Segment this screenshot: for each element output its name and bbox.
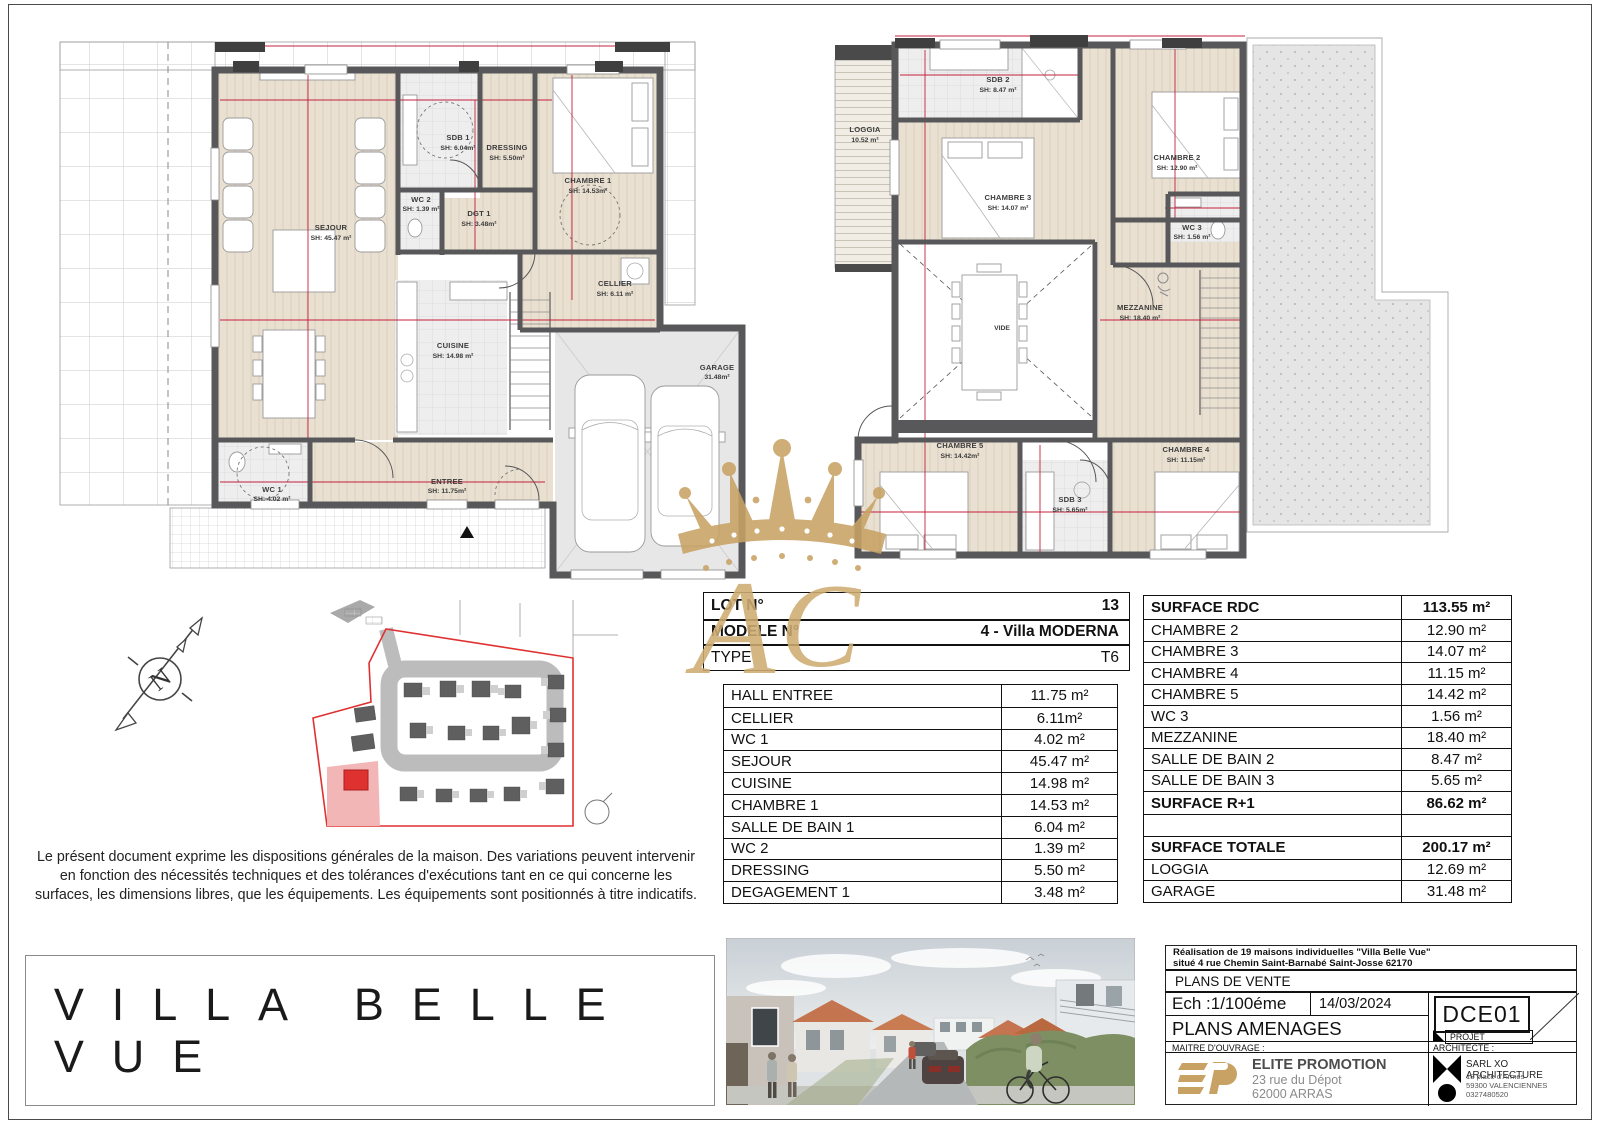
row-value: 11.75 m² xyxy=(1001,685,1117,707)
room-area: SH: 4.02 m² xyxy=(253,496,291,503)
project-title-box: VILLA BELLE VUE xyxy=(25,955,715,1106)
row-value: 11.15 m² xyxy=(1401,663,1511,684)
page-title: VILLA BELLE VUE xyxy=(26,979,714,1083)
table-row: CHAMBRE 314.07 m² xyxy=(1144,641,1511,663)
row-value: 1.39 m² xyxy=(1001,839,1117,860)
row-label: GARAGE xyxy=(1144,883,1401,900)
room-label: CHAMBRE 2 xyxy=(1154,153,1201,162)
table-row: MEZZANINE18.40 m² xyxy=(1144,727,1511,749)
elite-promotion-logo-icon xyxy=(1178,1059,1240,1101)
row-label: SURFACE R+1 xyxy=(1144,795,1401,812)
bed-icon xyxy=(553,78,653,173)
row-label: WC 1 xyxy=(724,731,1001,748)
room-label: SDB 3 xyxy=(1058,495,1081,504)
car-icon xyxy=(645,386,725,546)
row-value: 6.11m² xyxy=(1001,708,1117,729)
room-label: MEZZANINE xyxy=(1117,303,1163,312)
table-row: CHAMBRE 114.53 m² xyxy=(724,794,1117,816)
row-label: SALLE DE BAIN 3 xyxy=(1144,772,1401,789)
room-label: CHAMBRE 3 xyxy=(985,193,1032,202)
row-label: SURFACE RDC xyxy=(1144,599,1401,616)
room-label: DRESSING xyxy=(486,143,527,152)
table-row: TYPE T6 xyxy=(704,644,1129,670)
row-label: SALLE DE BAIN 1 xyxy=(724,819,1001,836)
room-label: ENTREE xyxy=(431,477,463,486)
date-value: 14/03/2024 xyxy=(1311,993,1428,1016)
row-label: CELLIER xyxy=(724,710,1001,727)
street-photo xyxy=(726,938,1135,1105)
row-value: 12.90 m² xyxy=(1401,620,1511,641)
row-label: CHAMBRE 1 xyxy=(724,797,1001,814)
room-area: SH: 6.04m² xyxy=(440,145,476,152)
title-block: Réalisation de 19 maisons individuelles … xyxy=(1165,945,1577,1105)
room-area: SH: 11.15m² xyxy=(1167,457,1206,464)
table-row: LOT N° 13 xyxy=(704,593,1129,619)
owner-label: MAITRE D'OUVRAGE : xyxy=(1172,1043,1265,1053)
table-row: SURFACE TOTALE200.17 m² xyxy=(1144,836,1511,859)
scale-value: Ech :1/100éme xyxy=(1166,993,1311,1016)
vide-parapet xyxy=(895,420,1097,433)
row-value: 3.48 m² xyxy=(1001,882,1117,903)
room-area: SH: 1.56 m² xyxy=(1173,234,1211,241)
room-area: SH: 1.39 m² xyxy=(402,206,440,213)
table-row: SURFACE RDC113.55 m² xyxy=(1144,596,1511,619)
row-label: SALLE DE BAIN 2 xyxy=(1144,751,1401,768)
room-label: VIDE xyxy=(994,325,1010,332)
table-row-empty xyxy=(1144,814,1511,836)
row-value: T6 xyxy=(859,646,1129,670)
room-area: 10.52 m² xyxy=(851,137,879,144)
row-value: 14.42 m² xyxy=(1401,685,1511,706)
table-row: LOGGIA12.69 m² xyxy=(1144,859,1511,881)
room-label: SDB 1 xyxy=(446,133,470,142)
room-label: CHAMBRE 1 xyxy=(565,176,613,185)
plan-sheet: SEJOUR SH: 45.47 m² SDB 1 SH: 6.04m² DRE… xyxy=(0,0,1600,1131)
table-row: DRESSING5.50 m² xyxy=(724,859,1117,881)
room-area: 31.48m² xyxy=(704,374,730,381)
row-value: 1.56 m² xyxy=(1401,706,1511,727)
room-label: CELLIER xyxy=(598,279,632,288)
row-value: 86.62 m² xyxy=(1401,792,1511,814)
compass-north-label: N xyxy=(144,662,177,697)
rdc-rooms-table: HALL ENTREE11.75 m² CELLIER6.11m² WC 14.… xyxy=(723,684,1118,904)
project-description-line2: situé 4 rue Chemin Saint-Barnabé Saint-J… xyxy=(1173,959,1576,970)
document-type: PLANS DE VENTE xyxy=(1166,969,1576,993)
room-area: SH: 14.53m² xyxy=(569,188,609,195)
table-row: CUISINE14.98 m² xyxy=(724,772,1117,794)
row-label: CUISINE xyxy=(724,775,1001,792)
room-label: CHAMBRE 5 xyxy=(937,441,985,450)
row-label: TYPE xyxy=(704,649,859,667)
row-value: 8.47 m² xyxy=(1401,749,1511,770)
table-row: GARAGE31.48 m² xyxy=(1144,880,1511,902)
row-value: 13 xyxy=(859,593,1129,619)
room-label: LOGGIA xyxy=(849,125,880,134)
architect-phone: 0327480520 xyxy=(1466,1090,1508,1099)
row-value: 14.07 m² xyxy=(1401,642,1511,663)
row-label: MEZZANINE xyxy=(1144,729,1401,746)
table-row: HALL ENTREE11.75 m² xyxy=(724,685,1117,707)
row-label: CHAMBRE 3 xyxy=(1144,643,1401,660)
toilet-icon xyxy=(1211,221,1225,239)
room-area: SH: 45.47 m² xyxy=(311,235,353,242)
table-row: CHAMBRE 212.90 m² xyxy=(1144,619,1511,641)
row-label: HALL ENTREE xyxy=(724,687,1001,704)
room-area: SH: 3.48m² xyxy=(461,221,497,228)
room-area: SH: 11.75m² xyxy=(428,488,467,495)
architect-label: ARCHITECTE : xyxy=(1433,1043,1494,1053)
row-value: 5.50 m² xyxy=(1001,860,1117,881)
room-label: SDB 2 xyxy=(986,75,1009,84)
row-value: 45.47 m² xyxy=(1001,751,1117,772)
row-label: DRESSING xyxy=(724,862,1001,879)
row-label: WC 2 xyxy=(724,840,1001,857)
row-value: 12.69 m² xyxy=(1401,860,1511,881)
room-label: WC 1 xyxy=(262,485,282,494)
room-label: WC 3 xyxy=(1182,223,1202,232)
row-label: LOT N° xyxy=(704,597,859,615)
dining-table-icon xyxy=(253,330,325,418)
architect-address1: 18 place d'Armes xyxy=(1466,1072,1524,1081)
row-value: 14.98 m² xyxy=(1001,773,1117,794)
site-plan xyxy=(300,595,620,830)
surfaces-table: SURFACE RDC113.55 m² CHAMBRE 212.90 m² C… xyxy=(1143,595,1512,903)
table-row: SALLE DE BAIN 35.65 m² xyxy=(1144,770,1511,792)
document-code: DCE01 xyxy=(1434,996,1530,1033)
row-label: DEGAGEMENT 1 xyxy=(724,884,1001,901)
toilet-icon xyxy=(408,219,422,237)
room-area: SH: 14.42m² xyxy=(941,453,981,460)
row-label: SEJOUR xyxy=(724,753,1001,770)
owner-address2: 62000 ARRAS xyxy=(1252,1087,1333,1101)
owner-name: ELITE PROMOTION xyxy=(1252,1057,1387,1073)
table-row: WC 21.39 m² xyxy=(724,838,1117,860)
room-label: GARAGE xyxy=(700,363,735,372)
room-area: SH: 8.47 m² xyxy=(979,87,1017,94)
row-value: 31.48 m² xyxy=(1401,881,1511,902)
room-area: SH: 14.07 m² xyxy=(988,205,1030,212)
room-label: SEJOUR xyxy=(315,223,348,232)
table-row: MODELE N° 4 - Villa MODERNA xyxy=(704,619,1129,645)
row-value: 14.53 m² xyxy=(1001,795,1117,816)
room-label: CHAMBRE 4 xyxy=(1163,445,1211,454)
room-label: CUISINE xyxy=(437,341,469,350)
row-value: 4.02 m² xyxy=(1001,730,1117,751)
diagonal-cell xyxy=(1530,993,1579,1040)
room-area: SH: 14.98 m² xyxy=(433,353,475,360)
row-label: SURFACE TOTALE xyxy=(1144,839,1401,856)
row-value: 113.55 m² xyxy=(1401,596,1511,619)
project-description-line1: Réalisation de 19 maisons individuelles … xyxy=(1173,948,1576,959)
survey-mark-icon xyxy=(585,793,612,824)
row-label: WC 3 xyxy=(1144,708,1401,725)
bed-icon xyxy=(942,138,1034,238)
party-labels: MAITRE D'OUVRAGE : ARCHITECTE : xyxy=(1166,1041,1576,1053)
sheet-name: PLANS AMENAGES xyxy=(1166,1016,1428,1041)
table-row: SALLE DE BAIN 28.47 m² xyxy=(1144,748,1511,770)
lot-info-table: LOT N° 13 MODELE N° 4 - Villa MODERNA TY… xyxy=(703,592,1130,671)
table-row: CHAMBRE 411.15 m² xyxy=(1144,662,1511,684)
owner-address1: 23 rue du Dépot xyxy=(1252,1073,1342,1087)
table-row: DEGAGEMENT 13.48 m² xyxy=(724,881,1117,903)
room-label: WC 2 xyxy=(411,195,431,204)
row-label: CHAMBRE 5 xyxy=(1144,686,1401,703)
table-row: CELLIER6.11m² xyxy=(724,707,1117,729)
rdc-floor-plan: SEJOUR SH: 45.47 m² SDB 1 SH: 6.04m² DRE… xyxy=(55,30,755,590)
row-value: 6.04 m² xyxy=(1001,817,1117,838)
row-value: 5.65 m² xyxy=(1401,771,1511,792)
room-area: SH: 12.90 m² xyxy=(1157,165,1199,172)
room-label: DGT 1 xyxy=(467,209,491,218)
room-area: SH: 6.11 m² xyxy=(597,291,634,298)
dining-table-icon xyxy=(952,264,1027,400)
table-row: SEJOUR45.47 m² xyxy=(724,750,1117,772)
car-icon xyxy=(569,375,651,552)
table-row: WC 31.56 m² xyxy=(1144,705,1511,727)
project-description: Réalisation de 19 maisons individuelles … xyxy=(1166,946,1576,969)
row-value: 200.17 m² xyxy=(1401,837,1511,859)
room-area: SH: 5.50m² xyxy=(489,155,525,162)
architect-address2: 59300 VALENCIENNES xyxy=(1466,1081,1547,1090)
table-row: CHAMBRE 514.42 m² xyxy=(1144,684,1511,706)
vanity xyxy=(403,95,417,165)
compass-icon: N xyxy=(98,597,228,737)
xo-architecture-logo-icon xyxy=(1433,1055,1461,1103)
disclaimer-text: Le présent document exprime les disposit… xyxy=(30,848,702,905)
room-area: SH: 5.65m² xyxy=(1052,507,1088,514)
selected-house xyxy=(344,770,368,790)
room-area: SH: 18.40 m² xyxy=(1120,315,1162,322)
row-label: MODELE N° xyxy=(704,623,859,641)
bathtub-icon xyxy=(930,48,1008,70)
row-value: 4 - Villa MODERNA xyxy=(859,621,1129,645)
row-value: 18.40 m² xyxy=(1401,728,1511,749)
table-row: SURFACE R+186.62 m² xyxy=(1144,791,1511,814)
party-details: ELITE PROMOTION 23 rue du Dépot 62000 AR… xyxy=(1166,1053,1576,1104)
row-label: CHAMBRE 2 xyxy=(1144,622,1401,639)
table-row: WC 14.02 m² xyxy=(724,729,1117,751)
row-label: CHAMBRE 4 xyxy=(1144,665,1401,682)
r1-floor-plan: LOGGIA 10.52 m² SDB 2 SH: 8.47 m² CHAMBR… xyxy=(830,20,1452,580)
table-row: SALLE DE BAIN 16.04 m² xyxy=(724,816,1117,838)
row-label: LOGGIA xyxy=(1144,861,1401,878)
